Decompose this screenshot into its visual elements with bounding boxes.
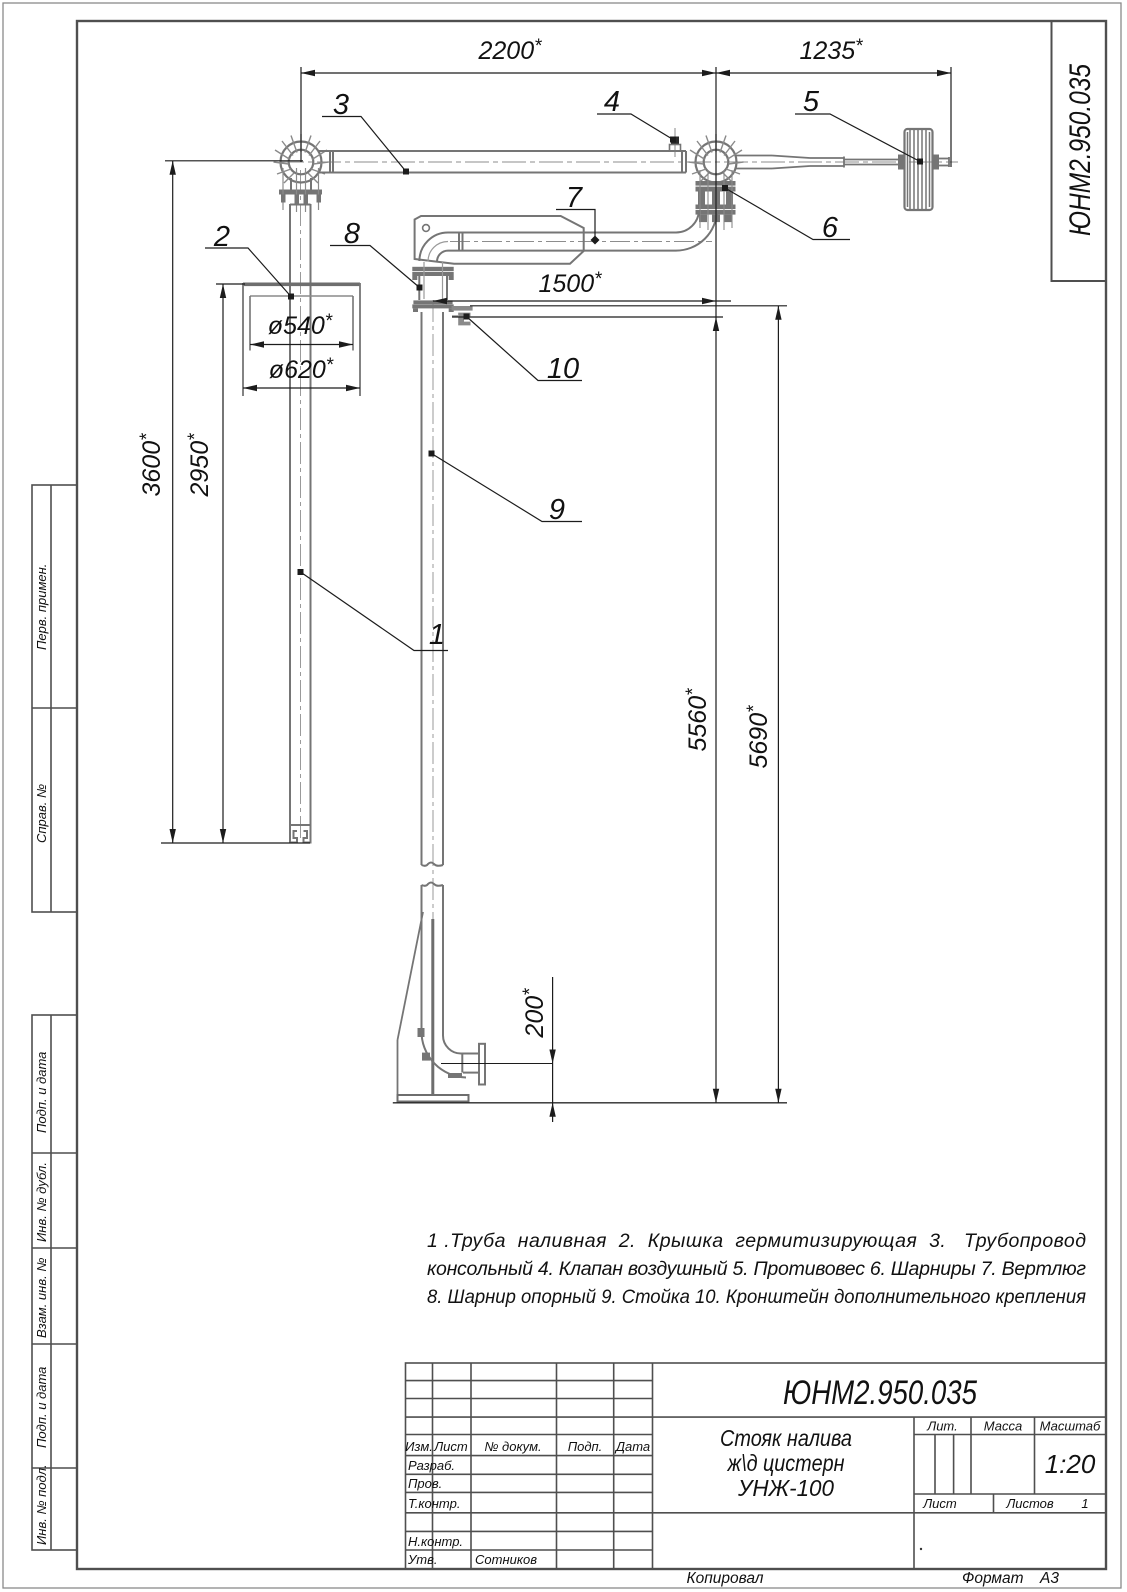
svg-text:№ докум.: № докум. [484, 1439, 541, 1454]
svg-text:2200*: 2200* [477, 36, 542, 65]
svg-text:1 .Труба наливная 2. Крышка: 1 .Труба наливная 2. Крышка гермитизирую… [427, 1230, 1086, 1252]
svg-text:ЮНМ2.950.035: ЮНМ2.950.035 [783, 1374, 977, 1412]
svg-text:5560*: 5560* [683, 688, 712, 752]
svg-text:Дата: Дата [614, 1439, 650, 1454]
svg-text:консольный 4. Клапан воздушный: консольный 4. Клапан воздушный 5. Против… [427, 1258, 1086, 1280]
svg-text:Лист: Лист [922, 1496, 957, 1511]
svg-text:Подп. и дата: Подп. и дата [34, 1367, 49, 1448]
svg-text:Формат: Формат [962, 1570, 1024, 1587]
svg-text:8: 8 [344, 218, 360, 250]
svg-text:Листов: Листов [1005, 1496, 1054, 1511]
svg-text:1: 1 [429, 619, 445, 651]
svg-text:1500*: 1500* [538, 269, 602, 298]
svg-text:5: 5 [803, 86, 820, 118]
svg-text:2: 2 [213, 221, 230, 253]
svg-text:ЮНМ2.950.035: ЮНМ2.950.035 [1064, 64, 1097, 236]
svg-text:УНЖ-100: УНЖ-100 [737, 1475, 834, 1501]
svg-text:Т.контр.: Т.контр. [408, 1496, 460, 1511]
svg-text:Н.контр.: Н.контр. [408, 1534, 463, 1549]
svg-text:1: 1 [1081, 1496, 1088, 1511]
svg-text:Масса: Масса [984, 1419, 1022, 1434]
svg-text:Инв. № подл.: Инв. № подл. [34, 1464, 49, 1545]
svg-text:Копировал: Копировал [686, 1570, 763, 1587]
svg-text:8. Шарнир опорный 9. Стойка 10: 8. Шарнир опорный 9. Стойка 10. Кронштей… [427, 1286, 1087, 1308]
svg-text:Подп. и дата: Подп. и дата [34, 1052, 49, 1133]
svg-text:ø620*: ø620* [269, 355, 334, 384]
svg-text:Лит.: Лит. [926, 1419, 957, 1434]
svg-text:Пров.: Пров. [408, 1476, 442, 1491]
svg-text:ж\д цистерн: ж\д цистерн [727, 1450, 845, 1476]
svg-text:10: 10 [547, 353, 579, 385]
svg-text:Стояк налива: Стояк налива [720, 1425, 852, 1451]
svg-text:Сотников: Сотников [475, 1552, 537, 1567]
svg-text:1:20: 1:20 [1045, 1449, 1096, 1479]
svg-text:9: 9 [549, 494, 565, 526]
svg-text:7: 7 [566, 182, 584, 214]
svg-text:5690*: 5690* [744, 705, 773, 769]
svg-text:Справ. №: Справ. № [34, 784, 49, 843]
svg-text:Разраб.: Разраб. [408, 1458, 455, 1473]
svg-text:4: 4 [604, 86, 620, 118]
svg-text:Изм.: Изм. [405, 1439, 433, 1454]
svg-text:1235*: 1235* [799, 36, 863, 65]
svg-text:А3: А3 [1039, 1570, 1059, 1587]
svg-text:Подп.: Подп. [568, 1439, 603, 1454]
svg-text:Взам. инв. №: Взам. инв. № [34, 1258, 49, 1338]
svg-text:6: 6 [822, 212, 839, 244]
svg-text:3600*: 3600* [137, 433, 166, 497]
svg-text:Инв. № дубл.: Инв. № дубл. [34, 1162, 49, 1242]
svg-text:2950*: 2950* [185, 433, 214, 498]
svg-text:3: 3 [333, 89, 349, 121]
svg-text:Перв. примен.: Перв. примен. [34, 564, 49, 650]
svg-text:ø540*: ø540* [268, 311, 333, 340]
svg-text:Лист: Лист [433, 1439, 468, 1454]
svg-text:Утв.: Утв. [407, 1552, 438, 1567]
svg-text:Масштаб: Масштаб [1040, 1419, 1101, 1434]
